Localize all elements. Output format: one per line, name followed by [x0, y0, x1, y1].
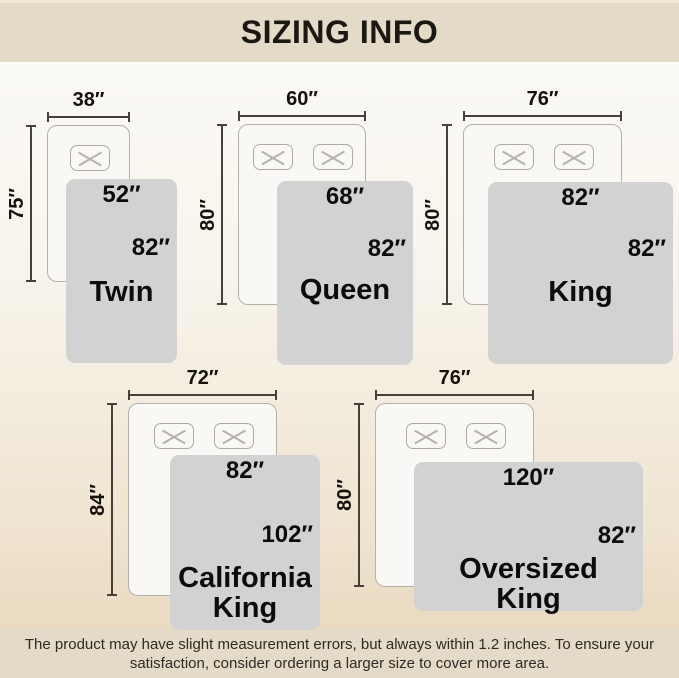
footer-band: The product may have slight measurement … — [0, 630, 679, 678]
disclaimer-line-1: The product may have slight measurement … — [25, 635, 654, 655]
blanket-height-label: 82″ — [598, 522, 636, 550]
blanket-width-label: 120″ — [414, 464, 643, 492]
diagram-area: 38″75″52″82″Twin60″80″68″82″Queen76″80″8… — [0, 62, 679, 630]
blanket-rect: 120″82″OversizedKing — [414, 462, 643, 611]
bed-width-label: 76″ — [355, 365, 554, 391]
pillow-icon — [406, 423, 446, 449]
bed-height-label: 80″ — [332, 440, 358, 550]
blanket-name-line: King — [414, 584, 643, 614]
width-dimension-line — [375, 394, 534, 396]
height-dimension-line — [358, 403, 360, 587]
size-diagram-oversized-king: 76″80″120″82″OversizedKing — [0, 0, 679, 630]
blanket-name-label: OversizedKing — [414, 554, 643, 614]
pillow-icon — [466, 423, 506, 449]
disclaimer-line-2: satisfaction, consider ordering a larger… — [130, 654, 549, 674]
blanket-name-line: Oversized — [414, 554, 643, 584]
sizing-info-panel: SIZING INFO 38″75″52″82″Twin60″80″68″82″… — [0, 0, 679, 678]
